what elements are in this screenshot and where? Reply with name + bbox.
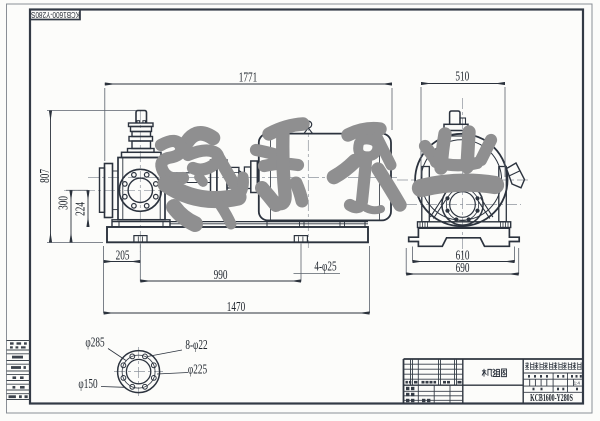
svg-text:300: 300 [55,196,72,210]
svg-text:510: 510 [455,68,469,85]
svg-text:990: 990 [214,266,228,283]
svg-text:1470: 1470 [227,298,246,315]
svg-text:1:4: 1:4 [574,381,581,386]
svg-text:KCB1600-Y280S: KCB1600-Y280S [530,391,573,403]
svg-text:690: 690 [456,259,470,276]
svg-text:φ285: φ285 [85,334,104,351]
svg-text:224: 224 [72,202,89,216]
svg-text:φ225: φ225 [188,361,207,378]
svg-text:807: 807 [36,169,53,183]
svg-text:4-φ25: 4-φ25 [314,258,336,275]
svg-text:φ150: φ150 [78,375,97,392]
svg-text:1771: 1771 [239,69,258,86]
svg-text:KCB1600-Y280S: KCB1600-Y280S [31,10,80,20]
svg-text:205: 205 [116,247,130,264]
svg-text:8-φ22: 8-φ22 [185,336,207,353]
